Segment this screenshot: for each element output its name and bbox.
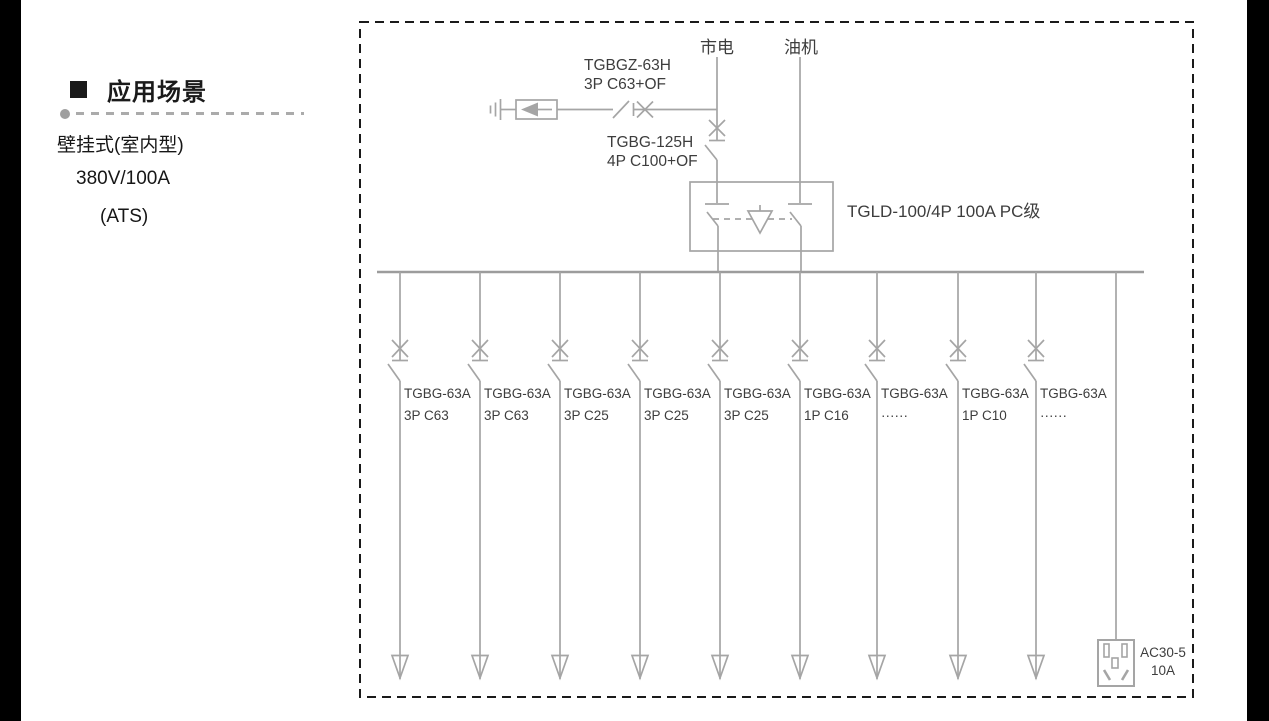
spd-branch-breaker-spec: 3P C63+OF <box>584 75 671 94</box>
ats-label: TGLD-100/4P 100A PC级 <box>847 202 1040 222</box>
feeder-branch-7 <box>865 272 885 679</box>
ats-switch-box <box>690 182 833 272</box>
feeder-branch-9 <box>1024 272 1044 679</box>
generator-label: 油机 <box>784 38 818 58</box>
branch-spec: ······ <box>1040 405 1107 427</box>
socket-label: AC30-5 10A <box>1137 644 1189 680</box>
branch-label-9: TGBG-63A ······ <box>1040 383 1107 427</box>
feeder-branch-2 <box>468 272 488 679</box>
branch-spec: 3P C63 <box>404 405 471 427</box>
branch-label-5: TGBG-63A 3P C25 <box>724 383 791 427</box>
ground-icon <box>491 99 501 120</box>
branch-label-8: TGBG-63A 1P C10 <box>962 383 1029 427</box>
single-line-diagram <box>0 0 1269 721</box>
branch-label-6: TGBG-63A 1P C16 <box>804 383 871 427</box>
branch-label-7: TGBG-63A ······ <box>881 383 948 427</box>
feeder-branch-8 <box>946 272 966 679</box>
socket-icon <box>1098 640 1134 686</box>
socket-rating: 10A <box>1137 662 1189 680</box>
branch-model: TGBG-63A <box>962 383 1029 405</box>
branch-spec: ······ <box>881 405 948 427</box>
feeder-branch-6 <box>788 272 808 679</box>
branch-spec: 3P C25 <box>724 405 791 427</box>
main-breaker-spec: 4P C100+OF <box>607 152 698 171</box>
branch-model: TGBG-63A <box>404 383 471 405</box>
branch-spec: 1P C10 <box>962 405 1029 427</box>
branch-spec: 3P C25 <box>564 405 631 427</box>
branch-spec: 1P C16 <box>804 405 871 427</box>
spd-branch-breaker-symbol <box>557 101 717 118</box>
branch-spec: 3P C63 <box>484 405 551 427</box>
branch-model: TGBG-63A <box>484 383 551 405</box>
socket-model: AC30-5 <box>1137 644 1189 662</box>
branch-model: TGBG-63A <box>881 383 948 405</box>
branch-spec: 3P C25 <box>644 405 711 427</box>
feeder-branch-3 <box>548 272 568 679</box>
branch-label-2: TGBG-63A 3P C63 <box>484 383 551 427</box>
branch-label-4: TGBG-63A 3P C25 <box>644 383 711 427</box>
branch-model: TGBG-63A <box>724 383 791 405</box>
ats-actuator-icon <box>748 205 772 233</box>
spd-branch-breaker-model: TGBGZ-63H <box>584 56 671 75</box>
branch-model: TGBG-63A <box>804 383 871 405</box>
branch-model: TGBG-63A <box>564 383 631 405</box>
main-breaker-label: TGBG-125H 4P C100+OF <box>607 133 698 171</box>
diagram-dashed-border <box>360 22 1193 697</box>
branch-label-1: TGBG-63A 3P C63 <box>404 383 471 427</box>
branch-model: TGBG-63A <box>1040 383 1107 405</box>
spd-icon <box>501 100 558 119</box>
mains-label: 市电 <box>700 38 734 58</box>
branch-label-3: TGBG-63A 3P C25 <box>564 383 631 427</box>
branch-model: TGBG-63A <box>644 383 711 405</box>
feeder-branch-5 <box>708 272 728 679</box>
mains-incomer-line <box>705 57 725 203</box>
spd-branch-breaker-label: TGBGZ-63H 3P C63+OF <box>584 56 671 94</box>
main-breaker-model: TGBG-125H <box>607 133 698 152</box>
feeder-branch-1 <box>388 272 408 679</box>
feeder-branch-4 <box>628 272 648 679</box>
